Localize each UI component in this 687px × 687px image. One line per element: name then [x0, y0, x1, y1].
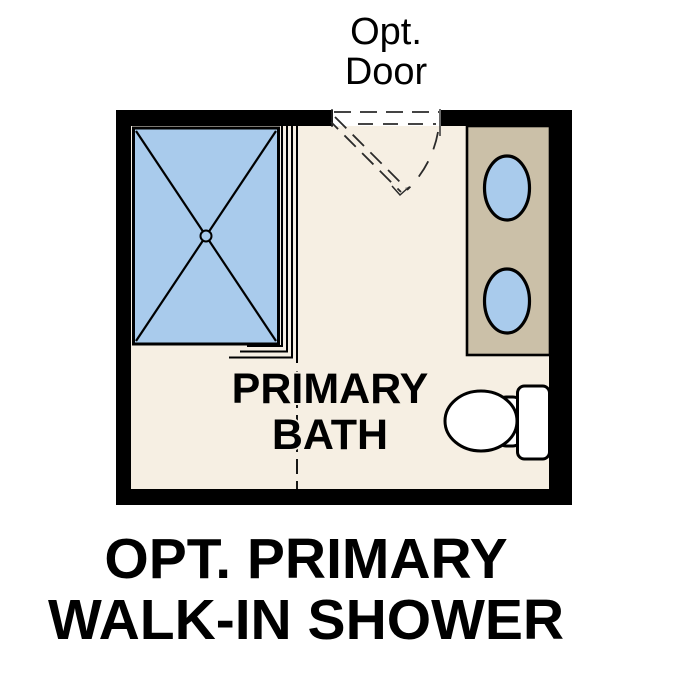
- wall-top-left-segment: [116, 110, 333, 126]
- room-label-line2: BATH: [160, 412, 500, 458]
- sink-basin-2: [485, 269, 530, 333]
- room-label-line1: PRIMARY: [160, 366, 500, 412]
- shower-drain: [201, 231, 212, 242]
- walk-in-shower-icon: [134, 128, 279, 344]
- wall-bottom: [116, 489, 572, 505]
- vanity-icon: [467, 126, 550, 355]
- opt-door-label-line2: Door: [306, 52, 466, 92]
- wall-right: [549, 110, 572, 505]
- room-label: PRIMARY BATH: [160, 366, 500, 458]
- toilet-tank: [518, 386, 550, 459]
- plan-caption-line2: WALK-IN SHOWER: [3, 590, 609, 651]
- sink-basin-1: [485, 156, 530, 220]
- opt-door-label: Opt. Door: [306, 12, 466, 92]
- floor-plan: Opt. Door PRIMARY BATH OPT. PRIMARY WALK…: [0, 0, 687, 687]
- plan-caption: OPT. PRIMARY WALK-IN SHOWER: [3, 529, 609, 651]
- opt-door-label-line1: Opt.: [306, 12, 466, 52]
- plan-caption-line1: OPT. PRIMARY: [3, 529, 609, 590]
- wall-left: [116, 110, 131, 505]
